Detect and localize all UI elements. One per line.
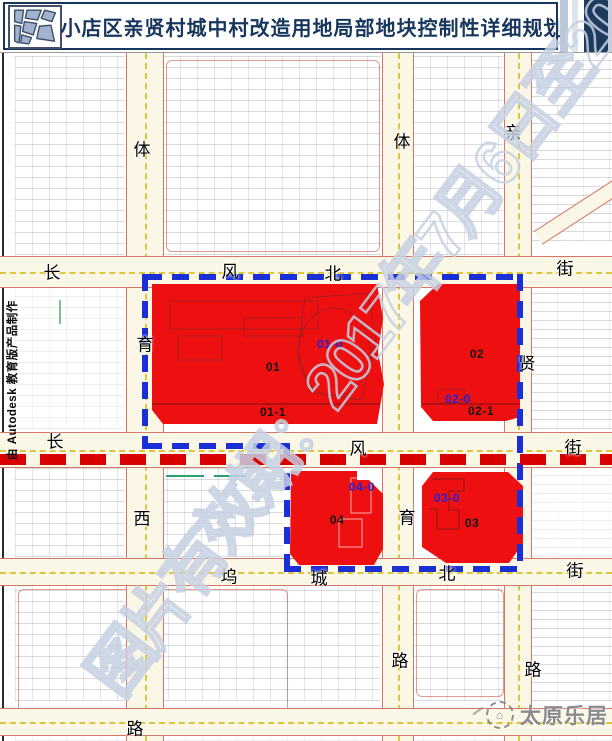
dashed-circle-house-logo-icon: ⌂ [486, 701, 514, 729]
boundary-blue-left [142, 274, 148, 449]
autodesk-credit: 由 Autodesk 教育版产品制作 [4, 300, 20, 460]
planned-road-red-dashed [0, 454, 612, 465]
parcel-04 [290, 471, 383, 565]
brand-watermark: ⌂ 太原乐居 [486, 700, 608, 730]
parcel-01 [152, 284, 384, 424]
boundary-blue-bottom [284, 566, 523, 572]
parcel-02 [420, 284, 520, 421]
boundary-blue-mid [145, 443, 290, 449]
planning-map-screenshot: 小店区亲贤村城中村改造用地局部地块控制性详细规划 [0, 0, 612, 741]
boundary-blue-right [517, 274, 523, 570]
boundary-blue-top [145, 274, 523, 280]
brand-watermark-text: 太原乐居 [520, 700, 608, 730]
